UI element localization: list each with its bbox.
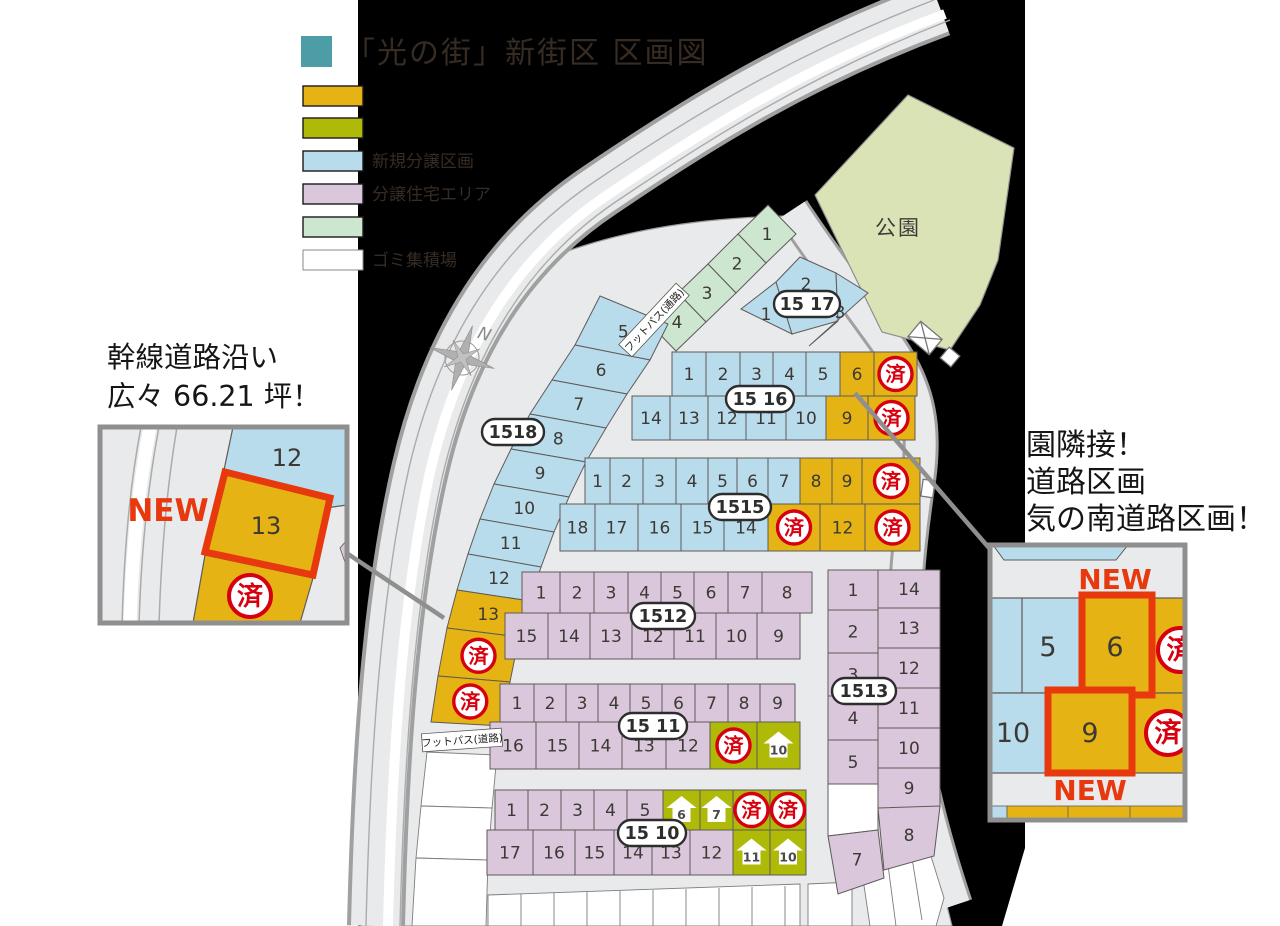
lot-number: 4 — [605, 801, 616, 821]
lot-number: 5 — [848, 753, 859, 773]
block-label-pill: 1518 — [482, 419, 544, 445]
lot-number: 15 — [584, 844, 606, 864]
legend-label-blue: 新規分譲区画 — [372, 152, 474, 172]
lot-number: 1 — [761, 305, 772, 325]
lot-number: 9 — [842, 409, 853, 429]
lot-number: 10 — [898, 739, 920, 759]
lot-number: 12 — [701, 844, 723, 864]
svg-text:1512: 1512 — [639, 607, 688, 627]
lot-number: 11 — [500, 534, 522, 554]
lot-number: 10 — [795, 409, 817, 429]
legend-swatch-green — [303, 217, 363, 237]
lot-number: 3 — [702, 284, 713, 304]
lot-number: 12 — [898, 659, 920, 679]
lot-number: 13 — [898, 619, 920, 639]
lot-number: 10 — [726, 627, 748, 647]
lot-number: 1 — [848, 581, 859, 601]
lot-number: 15 — [547, 737, 569, 757]
lot-number: 8 — [782, 584, 793, 604]
lot-number: 6 — [852, 365, 863, 385]
lot-number: 8 — [739, 694, 750, 714]
lot-number: 13 — [678, 409, 700, 429]
callout-left-title-2: 広々 66.21 坪！ — [107, 380, 321, 413]
svg-text:済: 済 — [778, 798, 799, 822]
block-label-pill: 15 16 — [726, 386, 794, 412]
lot-number: 7 — [573, 395, 584, 415]
svg-text:1513: 1513 — [840, 682, 889, 702]
lot-number: 7 — [740, 584, 751, 604]
lot-number: 6 — [596, 361, 607, 381]
lot-number: 2 — [718, 365, 729, 385]
lot-number: 2 — [572, 584, 583, 604]
callout-right-new-top: NEW — [1078, 563, 1152, 596]
callout-left-lot-13-label: 13 — [251, 512, 282, 540]
lot-number: 14 — [735, 519, 757, 539]
lot-number: 12 — [488, 569, 510, 589]
lot-number: 7 — [779, 472, 790, 492]
lot-number: 10 — [513, 499, 535, 519]
lot-number: 9 — [535, 464, 546, 484]
header: 「光の街」新街区 区画図 — [301, 36, 709, 71]
callout-right-caption-3: 気の南道路区画！ — [1026, 502, 1266, 537]
lot-number: 9 — [772, 694, 783, 714]
svg-text:済: 済 — [742, 798, 763, 822]
lot-number: 12 — [832, 519, 854, 539]
lot-number: 4 — [609, 694, 620, 714]
lot-number: 14 — [590, 737, 612, 757]
lot-number: 9 — [842, 472, 853, 492]
lot-number: 4 — [639, 584, 650, 604]
sold-badge: 済 — [778, 511, 811, 544]
lot-number: 6 — [706, 584, 717, 604]
svg-text:15 17: 15 17 — [780, 295, 835, 315]
lot-number: 11 — [684, 627, 706, 647]
callout-left-title-1: 幹線道路沿い — [107, 341, 278, 374]
svg-text:1515: 1515 — [716, 498, 765, 518]
legend-swatch-purple — [303, 184, 363, 204]
lot-number: 11 — [898, 699, 920, 719]
svg-text:済: 済 — [460, 690, 481, 714]
lot-number: 13 — [477, 605, 499, 625]
lot-number: 2 — [621, 472, 632, 492]
legend-swatch-gold — [303, 86, 363, 106]
lot-number: 6 — [673, 694, 684, 714]
callout-left-new-label: NEW — [127, 493, 208, 529]
svg-text:11: 11 — [743, 850, 760, 865]
callout-right-lot-5: 5 — [1039, 632, 1056, 663]
svg-text:6: 6 — [677, 807, 686, 822]
sold-badge: 済 — [879, 358, 912, 391]
lot-number: 5 — [641, 694, 652, 714]
lot-blank — [828, 784, 878, 836]
lot-number: 9 — [904, 779, 915, 799]
sold-badge: 済 — [462, 639, 495, 672]
lot-number: 12 — [677, 737, 699, 757]
lot-number: 7 — [852, 851, 863, 871]
lot-number: 8 — [553, 429, 564, 449]
sold-badge: 済 — [875, 465, 908, 498]
block-label-pill: 1512 — [631, 603, 695, 629]
legend-label-white: ゴミ集積場 — [372, 250, 457, 271]
callout-left-lot-12-label: 12 — [272, 444, 303, 472]
lot-number: 16 — [649, 519, 671, 539]
legend-swatch-blue — [303, 151, 363, 171]
lot-number: 3 — [572, 801, 583, 821]
lot-number: 4 — [687, 472, 698, 492]
lot-number: 14 — [898, 580, 920, 600]
svg-text:10: 10 — [770, 743, 788, 758]
lot-number: 9 — [773, 627, 784, 647]
lot-number: 1 — [536, 584, 547, 604]
svg-text:済: 済 — [883, 516, 904, 540]
lot-number: 5 — [672, 584, 683, 604]
lot-number: 2 — [732, 255, 743, 275]
lot-number: 2 — [539, 801, 550, 821]
lot-number: 5 — [717, 472, 728, 492]
lot-number: 1 — [512, 694, 523, 714]
svg-text:済: 済 — [469, 644, 490, 668]
callout-right-lot-10: 10 — [996, 718, 1030, 749]
lot-number: 1 — [684, 365, 695, 385]
sold-badge: 済 — [454, 685, 487, 718]
lot-number: 1 — [762, 225, 773, 245]
lot-number: 5 — [640, 801, 651, 821]
legend-label-purple: 分譲住宅エリア — [372, 185, 491, 205]
lot-map-flyer: 公園 N 123412315 175 — [0, 0, 1280, 926]
svg-text:10: 10 — [779, 850, 797, 865]
block-label-pill: 15 11 — [619, 713, 687, 739]
callout-right-caption-2: 道路区画 — [1026, 465, 1146, 500]
block-label-pill: 1515 — [709, 494, 771, 520]
svg-text:済: 済 — [886, 362, 907, 386]
lot-number: 1 — [506, 801, 517, 821]
lot-number: 17 — [606, 519, 628, 539]
svg-text:15 16: 15 16 — [733, 390, 788, 410]
sold-badge: 済 — [735, 794, 768, 827]
block-label-pill: 15 10 — [618, 820, 686, 846]
svg-text:済: 済 — [881, 469, 902, 493]
lot-number: 2 — [545, 694, 556, 714]
svg-text:済: 済 — [724, 734, 745, 758]
legend-swatch-yellow-green — [303, 118, 363, 138]
lot-number: 5 — [818, 365, 829, 385]
lot-number: 18 — [567, 519, 589, 539]
sold-badge: 済 — [772, 794, 805, 827]
svg-text:7: 7 — [712, 807, 721, 822]
lot-number: 3 — [606, 584, 617, 604]
lot-number: 15 — [692, 519, 714, 539]
callout-left: 幹線道路沿い 広々 66.21 坪！ 12 13 済 NEW — [100, 341, 347, 625]
park-label: 公園 — [875, 216, 921, 240]
svg-text:15 11: 15 11 — [626, 717, 681, 737]
lot-number: 3 — [577, 694, 588, 714]
lot-number: 4 — [784, 365, 795, 385]
lot-number: 3 — [654, 472, 665, 492]
block-label-pill: 1513 — [832, 678, 896, 704]
callout-right-caption-1: 園隣接！ — [1026, 428, 1146, 463]
page-title: 「光の街」新街区 区画図 — [345, 36, 709, 71]
lot-number: 3 — [751, 365, 762, 385]
lot-number: 13 — [600, 627, 622, 647]
callout-right-lot-9: 9 — [1081, 718, 1098, 749]
legend-swatch-white — [303, 250, 363, 270]
lot-number: 14 — [558, 627, 580, 647]
svg-text:済: 済 — [1155, 717, 1183, 749]
lot-number: 2 — [848, 623, 859, 643]
callout-right-new-bottom: NEW — [1053, 774, 1127, 807]
title-accent-square — [301, 36, 332, 67]
lot-number: 8 — [904, 826, 915, 846]
sold-badge: 済 — [717, 729, 750, 762]
callout-right-lot-6: 6 — [1106, 632, 1123, 663]
svg-text:1518: 1518 — [489, 423, 538, 443]
lot-number: 6 — [747, 472, 758, 492]
lot-number: 4 — [672, 313, 683, 333]
lot-number: 15 — [516, 627, 538, 647]
lot-number: 16 — [502, 737, 524, 757]
sold-badge: 済 — [876, 511, 909, 544]
lot-number: 7 — [706, 694, 717, 714]
lot-number: 16 — [543, 844, 565, 864]
lot-number: 14 — [640, 409, 662, 429]
white-lots-left-strip — [412, 752, 497, 926]
svg-text:済: 済 — [784, 516, 805, 540]
sold-badge: 済 — [875, 402, 908, 435]
block-label-pill: 15 17 — [774, 291, 840, 317]
lot-number: 17 — [499, 844, 521, 864]
svg-text:済: 済 — [237, 581, 264, 612]
lot-number: 8 — [811, 472, 822, 492]
svg-text:15 10: 15 10 — [625, 824, 680, 844]
lot-number: 4 — [848, 709, 859, 729]
lot-number: 1 — [592, 472, 603, 492]
